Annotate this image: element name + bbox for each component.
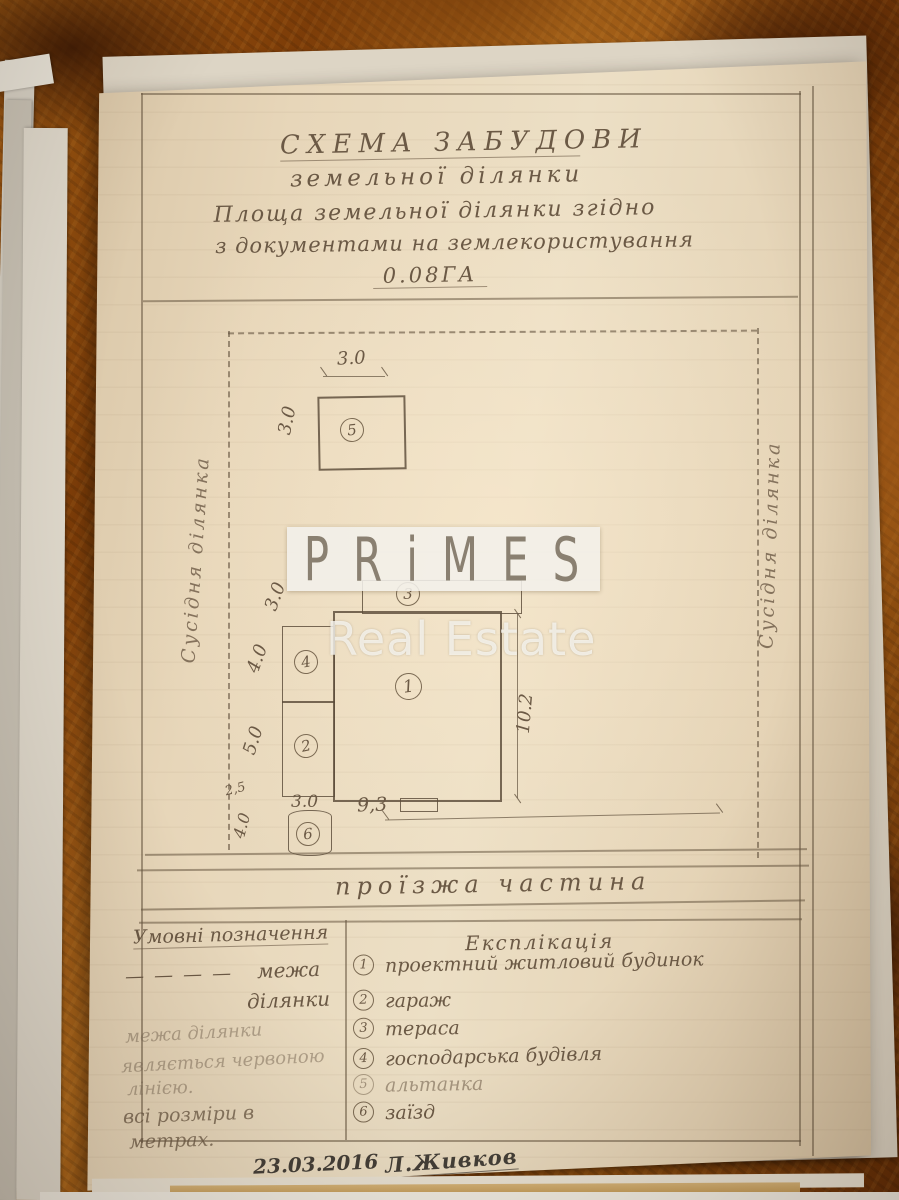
legend-item-2-label: гараж — [385, 988, 451, 1012]
legend-item-6-label: заїзд — [385, 1100, 436, 1124]
legend-boundary-symbol: — — — — — [125, 962, 234, 988]
legend-item-2-number: 2 — [353, 989, 374, 1010]
legend-item-5-number: 5 — [353, 1074, 374, 1095]
dim-b6-width: 3.0 — [291, 792, 318, 812]
legend-top-line — [139, 918, 802, 923]
dim-b5-height: 3.0 — [274, 404, 300, 436]
dim-b2-height: 5.0 — [239, 724, 268, 758]
title-line-1: СХЕМА ЗАБУДОВИ — [280, 125, 580, 161]
legend-note-3: лінією. — [127, 1077, 194, 1100]
neighbor-label-right: Сусідня ділянка — [755, 445, 784, 650]
legend-item-6: 6 заїзд — [353, 1100, 436, 1124]
title-area-value: 0.08ГА — [373, 262, 487, 289]
legend-item-6-number: 6 — [353, 1101, 374, 1122]
legend-item-1: 1 проектний житловий будинок — [353, 947, 704, 977]
frame-line-top — [141, 93, 801, 95]
title-line-3: Площа земельної ділянки згідно — [200, 195, 670, 228]
dim-b4-height: 4.0 — [243, 641, 273, 675]
dim-b1-height: 10.2 — [513, 693, 537, 735]
dim-line-b1-width — [385, 812, 720, 820]
legend-item-4-number: 4 — [353, 1048, 375, 1070]
building-1-porch — [400, 798, 438, 812]
signature: Л.Живков — [384, 1143, 518, 1178]
legend-item-1-label: проектний житловий будинок — [385, 947, 704, 977]
frame-line-right — [799, 91, 801, 1146]
watermark-brand: PRiMES — [284, 523, 604, 594]
legend-item-5-label: альтанка — [385, 1072, 484, 1097]
plot-boundary-left — [228, 331, 230, 850]
legend-item-1-number: 1 — [353, 954, 374, 975]
legend-item-3: 3 тераса — [353, 1016, 460, 1041]
legend-boundary-label-2: ділянки — [247, 987, 331, 1014]
footer-date: 23.03.2016 — [253, 1149, 379, 1178]
dim-b5-width: 3.0 — [336, 347, 366, 369]
legend-divider — [345, 920, 347, 1140]
watermark-subtitle: Real Estate — [326, 612, 596, 666]
legend-note-4: всі розміри в — [123, 1102, 255, 1129]
watermark-box: PRiMES — [287, 527, 600, 591]
legend-item-2: 2 гараж — [353, 988, 451, 1013]
street-line-3 — [141, 899, 805, 910]
plot-boundary-top — [228, 330, 757, 335]
title-line-2: земельної ділянки — [290, 162, 570, 193]
legend-left-header: Умовні позначення — [133, 921, 329, 949]
legend-item-3-label: тераса — [385, 1016, 460, 1040]
road-label: проїзжа частина — [335, 867, 635, 900]
street-line-1 — [145, 848, 807, 855]
title-separator-line — [143, 296, 798, 302]
legend-item-4: 4 господарська будівля — [353, 1042, 603, 1072]
paper-bottom-edge-white — [40, 1192, 899, 1200]
title-line-4: з документами на землекористування — [215, 228, 665, 258]
dim-line-b5-width — [323, 376, 385, 377]
frame-line-right-outer — [812, 86, 814, 1156]
dim-offset: 2,5 — [223, 780, 247, 800]
photo-of-site-plan: СХЕМА ЗАБУДОВИ земельної ділянки Площа з… — [0, 0, 899, 1200]
legend-boundary-label-1: межа — [257, 957, 321, 983]
legend-note-5: метрах. — [129, 1129, 215, 1154]
neighbor-label-left: Сусідня ділянка — [177, 458, 213, 664]
legend-note-1: межа ділянки — [125, 1019, 263, 1047]
legend-note-2: являється червоною — [121, 1046, 325, 1078]
dim-b6-height: 4.0 — [229, 811, 254, 841]
legend-item-5: 5 альтанка — [353, 1072, 484, 1097]
legend-item-3-number: 3 — [353, 1018, 374, 1039]
frame-line-bottom — [139, 1140, 801, 1142]
legend-item-4-label: господарська будівля — [385, 1042, 603, 1071]
